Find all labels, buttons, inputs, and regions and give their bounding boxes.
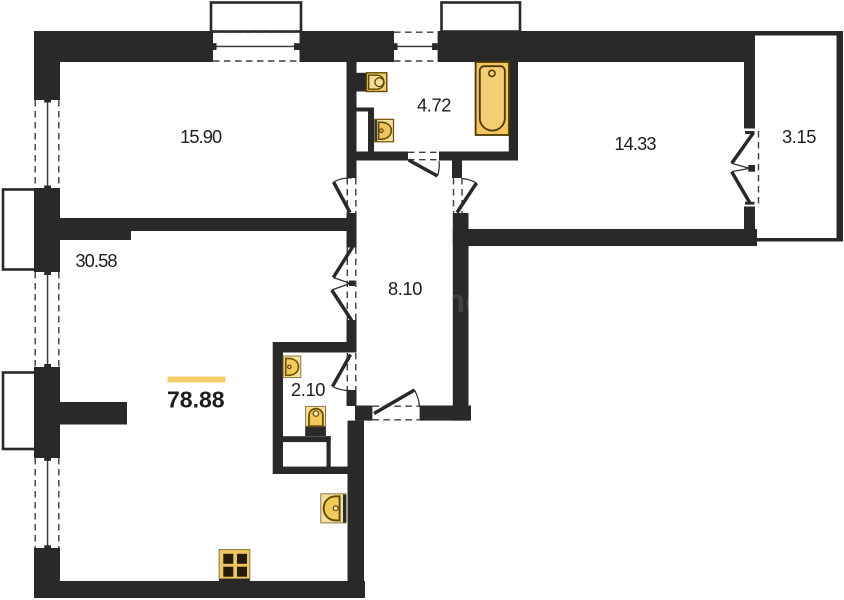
svg-text:78.88: 78.88 <box>167 387 225 413</box>
svg-text:14.33: 14.33 <box>614 133 656 154</box>
svg-text:8.10: 8.10 <box>388 278 422 299</box>
svg-text:15.90: 15.90 <box>180 126 222 147</box>
svg-text:2.10: 2.10 <box>291 379 325 400</box>
svg-text:30.58: 30.58 <box>75 250 117 271</box>
svg-text:3.15: 3.15 <box>782 126 816 147</box>
svg-text:4.72: 4.72 <box>417 95 451 116</box>
